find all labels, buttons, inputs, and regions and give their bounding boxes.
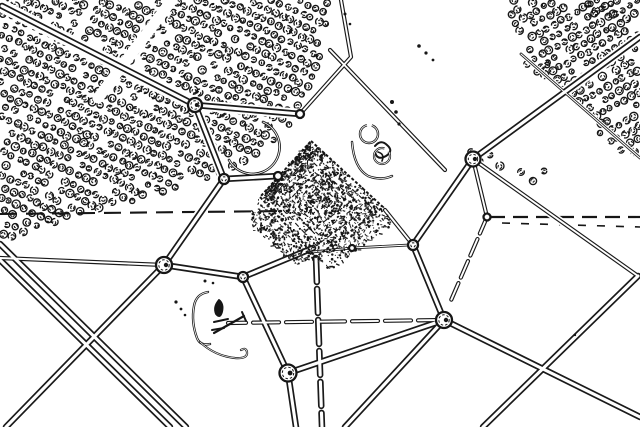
edge-detected-aerial-image	[0, 0, 640, 427]
edge-map-canvas	[0, 0, 640, 427]
